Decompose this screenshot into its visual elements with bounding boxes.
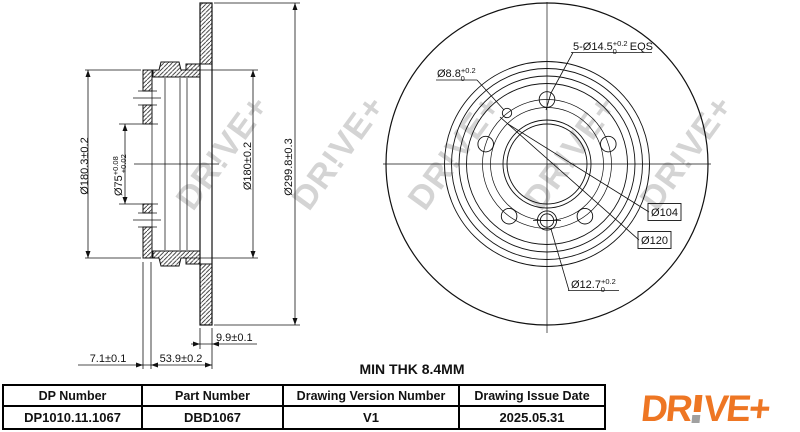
watermark-text: DR!VE+ xyxy=(169,88,277,217)
value-part-number: DBD1067 xyxy=(143,407,284,428)
label-hole-8-8: Ø8.8+0.20 xyxy=(437,66,476,83)
min-thickness-note: MIN THK 8.4MM xyxy=(360,361,465,377)
label-hole-12-7: Ø12.7+0.20 xyxy=(571,277,616,294)
header-dp-number: DP Number xyxy=(4,386,143,407)
watermark-layer: DR!VE+ DR!VE+ DR!VE+ DR!VE+ DR!VE+ xyxy=(169,88,741,217)
flange-bottom-b xyxy=(143,227,152,258)
brand-logo: DR VE+ xyxy=(611,387,800,430)
hat-wall-top xyxy=(153,62,200,77)
flange-top-a xyxy=(143,70,152,91)
section-view xyxy=(133,3,219,325)
dim-disc-thickness: 9.9±0.1 xyxy=(216,332,253,344)
dim-flange-thickness: 7.1±0.1 xyxy=(90,353,127,365)
flange-top-b xyxy=(143,105,152,124)
drawing-sheet: DR!VE+ DR!VE+ DR!VE+ DR!VE+ DR!VE+ xyxy=(0,0,800,432)
label-circle-120: Ø120 xyxy=(641,235,668,247)
logo-exclamation-dot xyxy=(691,415,700,423)
label-circle-104: Ø104 xyxy=(651,207,678,219)
hat-wall-bottom xyxy=(153,251,200,266)
dim-outer-diameter: Ø299.8±0.3 xyxy=(283,138,295,195)
logo-text-right: VE+ xyxy=(702,390,771,427)
header-issue-date: Drawing Issue Date xyxy=(460,386,604,407)
dim-hat-inner-diameter: Ø180±0.2 xyxy=(242,142,254,190)
ring-section-bottom xyxy=(200,264,212,325)
header-drawing-version: Drawing Version Number xyxy=(284,386,460,407)
value-issue-date: 2025.05.31 xyxy=(460,407,604,428)
watermark-text: DR!VE+ xyxy=(401,88,509,217)
logo-exclamation-bar xyxy=(693,395,702,412)
label-bolt-holes: 5-Ø14.5+0.20EQS xyxy=(573,39,653,56)
watermark-text: DR!VE+ xyxy=(285,88,393,217)
value-drawing-version: V1 xyxy=(284,407,460,428)
header-part-number: Part Number xyxy=(143,386,284,407)
technical-drawing: DR!VE+ DR!VE+ DR!VE+ DR!VE+ DR!VE+ xyxy=(0,0,800,384)
logo-text-left: DR xyxy=(639,390,692,427)
dim-hat-outer-diameter: Ø180.3±0.2 xyxy=(79,137,91,194)
value-dp-number: DP1010.11.1067 xyxy=(4,407,143,428)
title-block: DP Number Part Number Drawing Version Nu… xyxy=(2,384,606,430)
dim-bore: Ø75+0.08+0.02 xyxy=(111,154,128,196)
ring-section-top xyxy=(200,3,212,64)
flange-bottom-a xyxy=(143,204,152,213)
watermark-text: DR!VE+ xyxy=(517,88,625,217)
dim-total-height: 53.9±0.2 xyxy=(160,353,203,365)
